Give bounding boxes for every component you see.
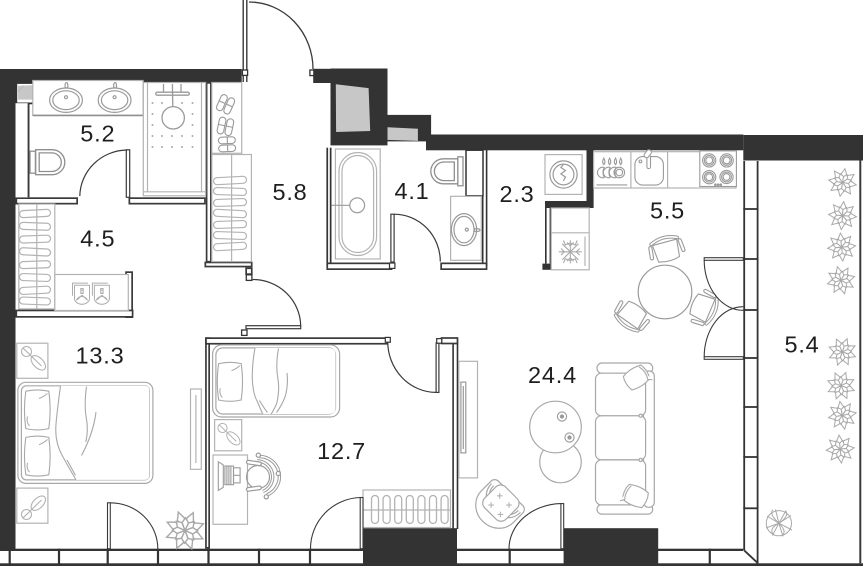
svg-text:12.7: 12.7	[317, 438, 366, 464]
svg-text:24.4: 24.4	[528, 362, 577, 388]
svg-text:5.4: 5.4	[784, 332, 819, 358]
svg-text:2.3: 2.3	[499, 181, 534, 207]
svg-text:13.3: 13.3	[76, 343, 125, 369]
svg-text:5.5: 5.5	[650, 198, 685, 224]
svg-text:4.5: 4.5	[80, 226, 115, 252]
svg-text:5.2: 5.2	[80, 121, 115, 147]
svg-text:5.8: 5.8	[272, 179, 307, 205]
svg-text:4.1: 4.1	[394, 178, 429, 204]
